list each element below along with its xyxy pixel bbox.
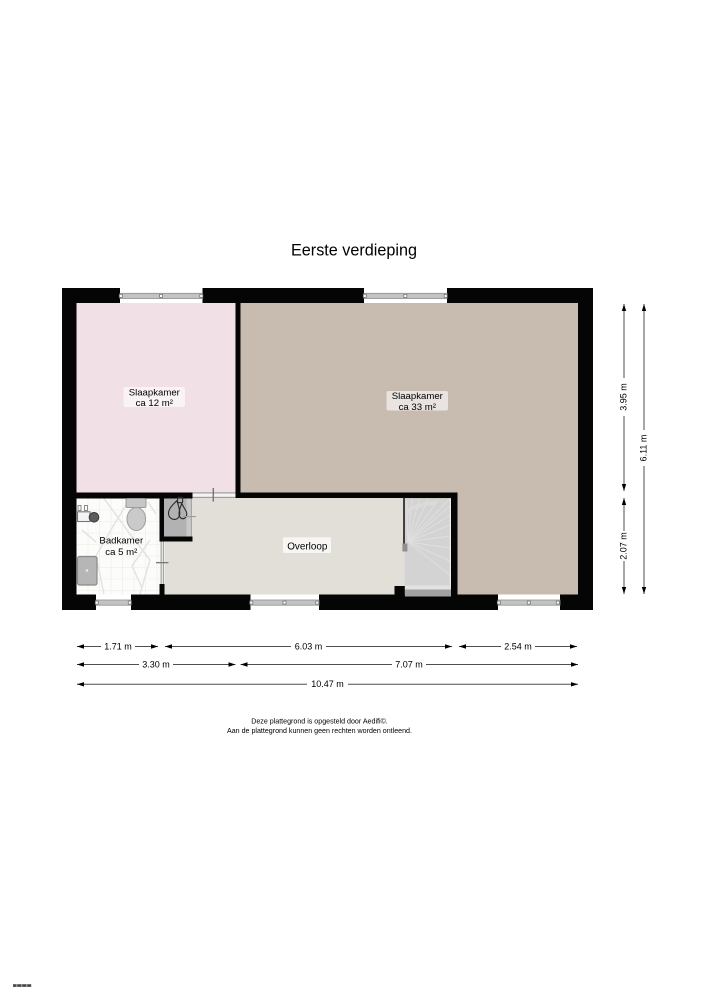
svg-text:6.03 m: 6.03 m: [295, 641, 323, 651]
svg-text:ca 33 m²: ca 33 m²: [399, 402, 437, 413]
svg-text:1.71 m: 1.71 m: [104, 641, 132, 651]
svg-text:Aan de plattegrond kunnen geen: Aan de plattegrond kunnen geen rechten w…: [227, 727, 412, 735]
svg-text:10.47 m: 10.47 m: [311, 679, 344, 689]
svg-text:ca 12 m²: ca 12 m²: [136, 398, 174, 409]
svg-text:2.07 m: 2.07 m: [618, 532, 628, 560]
svg-text:Badkamer: Badkamer: [99, 536, 144, 547]
svg-text:Eerste verdieping: Eerste verdieping: [291, 241, 417, 259]
svg-text:3.95 m: 3.95 m: [618, 383, 628, 411]
svg-text:ca 5 m²: ca 5 m²: [105, 547, 138, 558]
svg-text:6.11 m: 6.11 m: [638, 435, 648, 462]
svg-text:Overloop: Overloop: [287, 541, 328, 552]
svg-text:Slaapkamer: Slaapkamer: [129, 387, 181, 398]
svg-text:2.54 m: 2.54 m: [504, 641, 532, 651]
svg-text:Slaapkamer: Slaapkamer: [392, 391, 444, 402]
svg-text:Deze plattegrond is opgesteld: Deze plattegrond is opgesteld door Aedif…: [251, 718, 388, 726]
svg-text:3.30 m: 3.30 m: [142, 659, 170, 669]
svg-text:7.07 m: 7.07 m: [395, 659, 423, 669]
